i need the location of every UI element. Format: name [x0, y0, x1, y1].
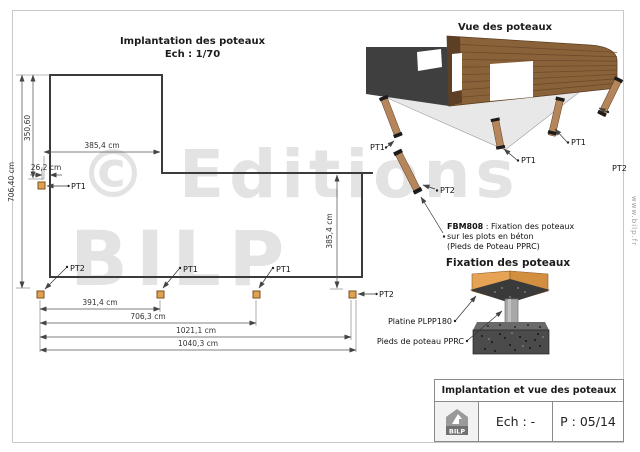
svg-text:350,60: 350,60 — [23, 115, 32, 141]
title-block-title: Implantation et vue des poteaux — [435, 380, 623, 402]
view-3d: PT1 PT2 PT1 PT1 PT2 FBM808 : Fixation de… — [366, 36, 627, 251]
dim-top-width: 385,4 cm — [44, 141, 160, 179]
svg-text:706,40 cm: 706,40 cm — [7, 162, 16, 202]
svg-text:Platine PLPP180: Platine PLPP180 — [388, 317, 452, 326]
svg-text:1040,3 cm: 1040,3 cm — [178, 339, 218, 348]
svg-text:PT1: PT1 — [370, 143, 385, 152]
fixation-title: Fixation des poteaux — [420, 257, 596, 271]
plan-title: Implantation des poteaux Ech : 1/70 — [95, 35, 290, 61]
svg-text:1021,1 cm: 1021,1 cm — [176, 326, 216, 335]
svg-text:PT2: PT2 — [379, 290, 394, 299]
title-block-scale: Ech : - — [479, 402, 553, 441]
svg-text:385,4 cm: 385,4 cm — [84, 141, 119, 150]
svg-text:sur les plots en béton: sur les plots en béton — [447, 231, 534, 241]
bilp-logo-text: BILP — [448, 427, 465, 435]
post-marker-bottom-2 — [157, 291, 164, 298]
svg-text:391,4 cm: 391,4 cm — [82, 298, 117, 307]
post-marker-bottom-right — [349, 291, 356, 298]
bilp-logo-icon: BILP — [445, 408, 469, 436]
post-3d-front-left — [393, 149, 422, 195]
svg-text:385,4 cm: 385,4 cm — [325, 213, 334, 248]
plan-scale-text: Ech : 1/70 — [95, 48, 290, 61]
title-block: Implantation et vue des poteaux BILP Ech… — [434, 379, 624, 442]
svg-text:PT1: PT1 — [71, 182, 86, 191]
post-marker-bottom-3 — [253, 291, 260, 298]
website-vertical-text: www.bilp.fr — [624, 196, 638, 246]
svg-text:FBM808 : Fixation des poteaux: FBM808 : Fixation des poteaux — [447, 222, 574, 231]
garage-opening-3d — [490, 61, 533, 101]
plan-post-labels: PT1 PT2 PT1 PT1 PT2 — [45, 182, 394, 299]
fixation-note: FBM808 : Fixation des poteaux sur les pl… — [421, 197, 574, 251]
dim-chains: 391,4 cm 706,3 cm 1021,1 cm 1040,3 cm — [40, 298, 356, 352]
view3d-title: Vue des poteaux — [420, 21, 590, 34]
svg-text:Pieds de poteau PPRC: Pieds de poteau PPRC — [377, 337, 464, 346]
svg-text:PT2: PT2 — [440, 186, 455, 195]
fixation-detail: Platine PLPP180 Pieds de poteau PPRC — [377, 271, 550, 354]
plan-view: 385,4 cm 706,40 cm 350,60 26,2 cm 385,4 … — [7, 75, 394, 352]
svg-text:(Pieds de Poteau PPRC): (Pieds de Poteau PPRC) — [447, 242, 540, 251]
svg-text:PT2: PT2 — [612, 164, 627, 173]
wood-wall-3d — [447, 36, 617, 106]
title-block-page: P : 05/14 — [553, 402, 623, 441]
plan-slab-outline — [50, 75, 362, 277]
svg-text:PT2: PT2 — [70, 264, 85, 273]
svg-text:PT1: PT1 — [276, 265, 291, 274]
dim-post-offset: 26,2 cm — [30, 163, 62, 180]
dim-right-depth: 385,4 cm — [325, 175, 343, 289]
svg-text:PT1: PT1 — [571, 138, 586, 147]
svg-text:26,2 cm: 26,2 cm — [31, 163, 62, 172]
svg-text:706,3 cm: 706,3 cm — [130, 312, 165, 321]
plan-title-text: Implantation des poteaux — [95, 35, 290, 48]
post-marker-top-left — [38, 182, 45, 189]
svg-text:PT1: PT1 — [521, 156, 536, 165]
post-marker-bottom-1 — [37, 291, 44, 298]
door-opening-3d — [452, 53, 462, 92]
svg-text:PT1: PT1 — [183, 265, 198, 274]
bilp-logo-cell: BILP — [435, 402, 479, 441]
